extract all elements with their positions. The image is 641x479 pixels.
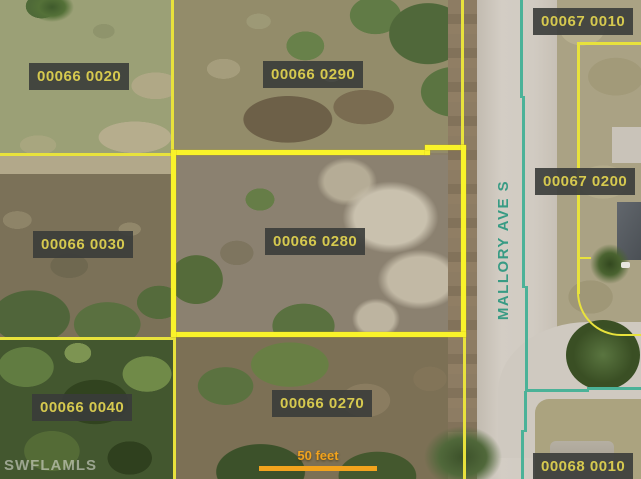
watermark-swflamls: SWFLAMLS [4,457,97,474]
parcel-label-00067-0200: 00067 0200 [535,168,635,195]
parcel-label-00066-0290: 00066 0290 [263,61,363,88]
row-line-segment [525,286,528,392]
parcel-line [0,337,173,340]
row-line-segment [524,391,527,432]
aerial-parcel-map[interactable]: MALLORY AVE S 00066 0020 00066 0290 0006… [0,0,641,479]
parcel-label-00068-0010: 00068 0010 [533,453,633,479]
parcel-line [0,153,173,156]
parcel-line [173,337,176,479]
row-line-segment [521,430,524,479]
driveway-right [612,127,641,163]
parcel-line [171,0,174,153]
row-line-segment [520,0,523,98]
parcel-line [577,42,641,45]
parcel-label-00066-0270: 00066 0270 [272,390,372,417]
parcel-line [463,337,466,479]
selected-parcel-border-top2 [425,145,466,150]
street-label-mallory-ave-s: MALLORY AVE S [495,165,515,335]
parcel-line [577,257,591,259]
selected-parcel-border-bottom [171,332,466,337]
parcel-label-00066-0030: 00066 0030 [33,231,133,258]
parcel-line [622,334,641,337]
scale-label: 50 feet [259,448,377,463]
parcel-label-00066-0040: 00066 0040 [32,394,132,421]
car-right [621,262,630,268]
parcel-label-00066-0280: 00066 0280 [265,228,365,255]
selected-parcel-border-left [171,150,176,337]
scale-bar [259,466,377,471]
parcel-line [461,0,464,147]
selected-parcel-border-right [461,145,466,337]
row-line-segment [587,387,641,390]
row-line-segment [522,96,525,288]
row-line-segment [525,389,589,392]
selected-parcel-border-top [171,150,428,155]
parcel-label-00067-0010: 00067 0010 [533,8,633,35]
parcel-label-00066-0020: 00066 0020 [29,63,129,90]
